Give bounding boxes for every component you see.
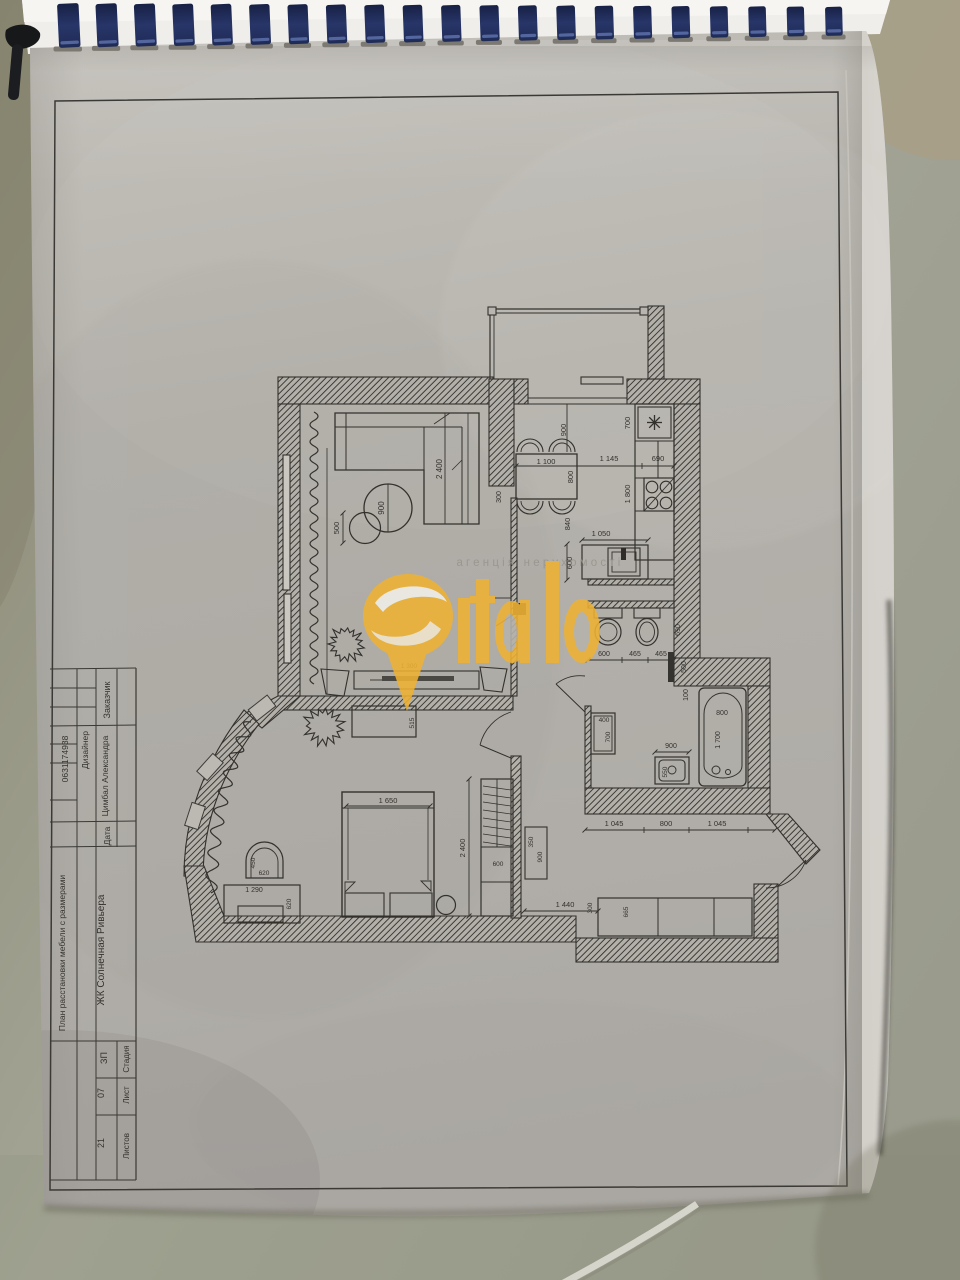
svg-text:2 400: 2 400: [458, 839, 467, 858]
svg-text:1 045: 1 045: [708, 819, 727, 828]
svg-text:21: 21: [96, 1138, 106, 1148]
svg-text:690: 690: [675, 624, 682, 636]
svg-text:Листов: Листов: [122, 1133, 131, 1159]
svg-text:450: 450: [250, 857, 257, 868]
svg-text:665: 665: [623, 906, 630, 917]
svg-text:300: 300: [496, 491, 503, 503]
svg-text:1 800: 1 800: [623, 485, 632, 504]
svg-text:1 050: 1 050: [592, 529, 611, 538]
svg-text:900: 900: [377, 501, 386, 515]
svg-text:800: 800: [716, 710, 728, 717]
svg-text:ЗП: ЗП: [99, 1052, 109, 1064]
svg-text:Дата: Дата: [102, 826, 112, 845]
svg-text:620: 620: [286, 898, 293, 909]
svg-text:1 440: 1 440: [556, 900, 575, 909]
svg-text:Лист: Лист: [122, 1086, 131, 1104]
svg-text:900: 900: [537, 851, 544, 862]
svg-text:07: 07: [96, 1088, 106, 1098]
svg-text:агенція нерухомості: агенція нерухомості: [456, 557, 623, 569]
svg-text:515: 515: [409, 717, 416, 728]
svg-text:550: 550: [662, 766, 669, 777]
svg-text:1 700: 1 700: [715, 731, 722, 749]
svg-text:300: 300: [587, 902, 594, 913]
svg-text:1 145: 1 145: [600, 454, 619, 463]
svg-text:500: 500: [681, 661, 688, 673]
svg-text:План расстановки мебели с разм: План расстановки мебели с размерами: [57, 875, 67, 1032]
svg-text:465: 465: [655, 651, 667, 658]
svg-text:700: 700: [623, 417, 632, 430]
svg-text:1 650: 1 650: [379, 796, 398, 805]
svg-text:Заказчик: Заказчик: [102, 681, 112, 718]
svg-text:840: 840: [563, 518, 572, 531]
svg-text:400: 400: [599, 717, 610, 724]
svg-text:0631174938: 0631174938: [60, 735, 70, 782]
svg-text:350: 350: [528, 836, 535, 847]
svg-text:1 100: 1 100: [537, 457, 556, 466]
svg-text:620: 620: [259, 870, 270, 877]
svg-text:900: 900: [665, 743, 677, 750]
svg-text:500: 500: [332, 522, 341, 535]
svg-text:800: 800: [566, 471, 575, 484]
svg-text:1 045: 1 045: [605, 819, 624, 828]
svg-text:800: 800: [660, 819, 673, 828]
svg-text:Дизайнер: Дизайнер: [80, 731, 90, 769]
svg-text:700: 700: [605, 731, 612, 742]
svg-text:600: 600: [493, 861, 504, 868]
svg-text:Цимбал Александра: Цимбал Александра: [100, 735, 110, 816]
svg-text:600: 600: [598, 651, 610, 658]
svg-text:Стадия: Стадия: [122, 1045, 131, 1072]
svg-text:ЖК Солнечная Ривьера: ЖК Солнечная Ривьера: [96, 894, 107, 1005]
svg-text:2 400: 2 400: [435, 458, 444, 479]
svg-text:100: 100: [683, 689, 690, 701]
svg-text:1 290: 1 290: [245, 887, 263, 894]
svg-text:465: 465: [629, 651, 641, 658]
